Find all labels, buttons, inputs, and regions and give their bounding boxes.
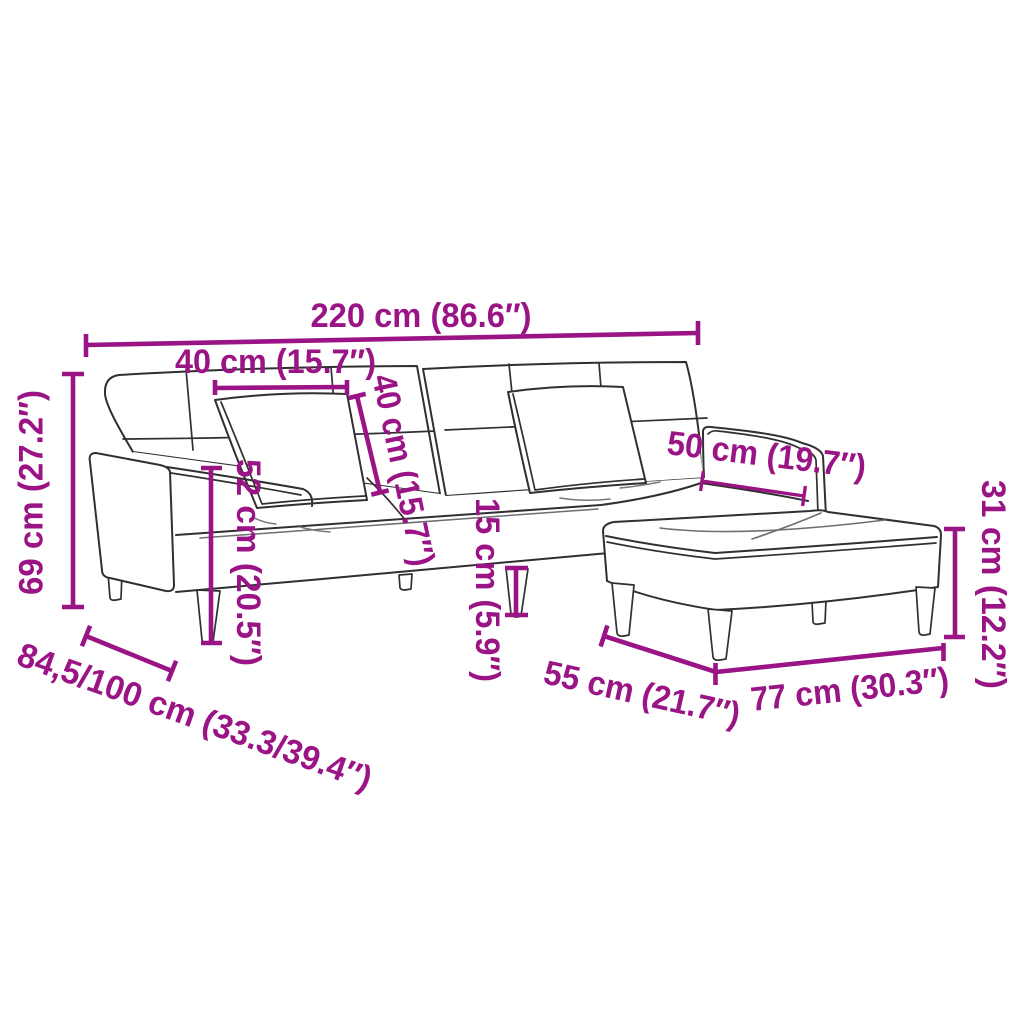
svg-text:52 cm (20.5″): 52 cm (20.5″) [229, 459, 267, 666]
svg-text:31 cm (12.2″): 31 cm (12.2″) [974, 480, 1012, 689]
svg-text:220 cm (86.6″): 220 cm (86.6″) [311, 297, 532, 335]
svg-text:40 cm (15.7″): 40 cm (15.7″) [175, 343, 376, 381]
svg-text:69 cm (27.2″): 69 cm (27.2″) [13, 390, 51, 595]
svg-text:15 cm (5.9″): 15 cm (5.9″) [468, 498, 506, 682]
